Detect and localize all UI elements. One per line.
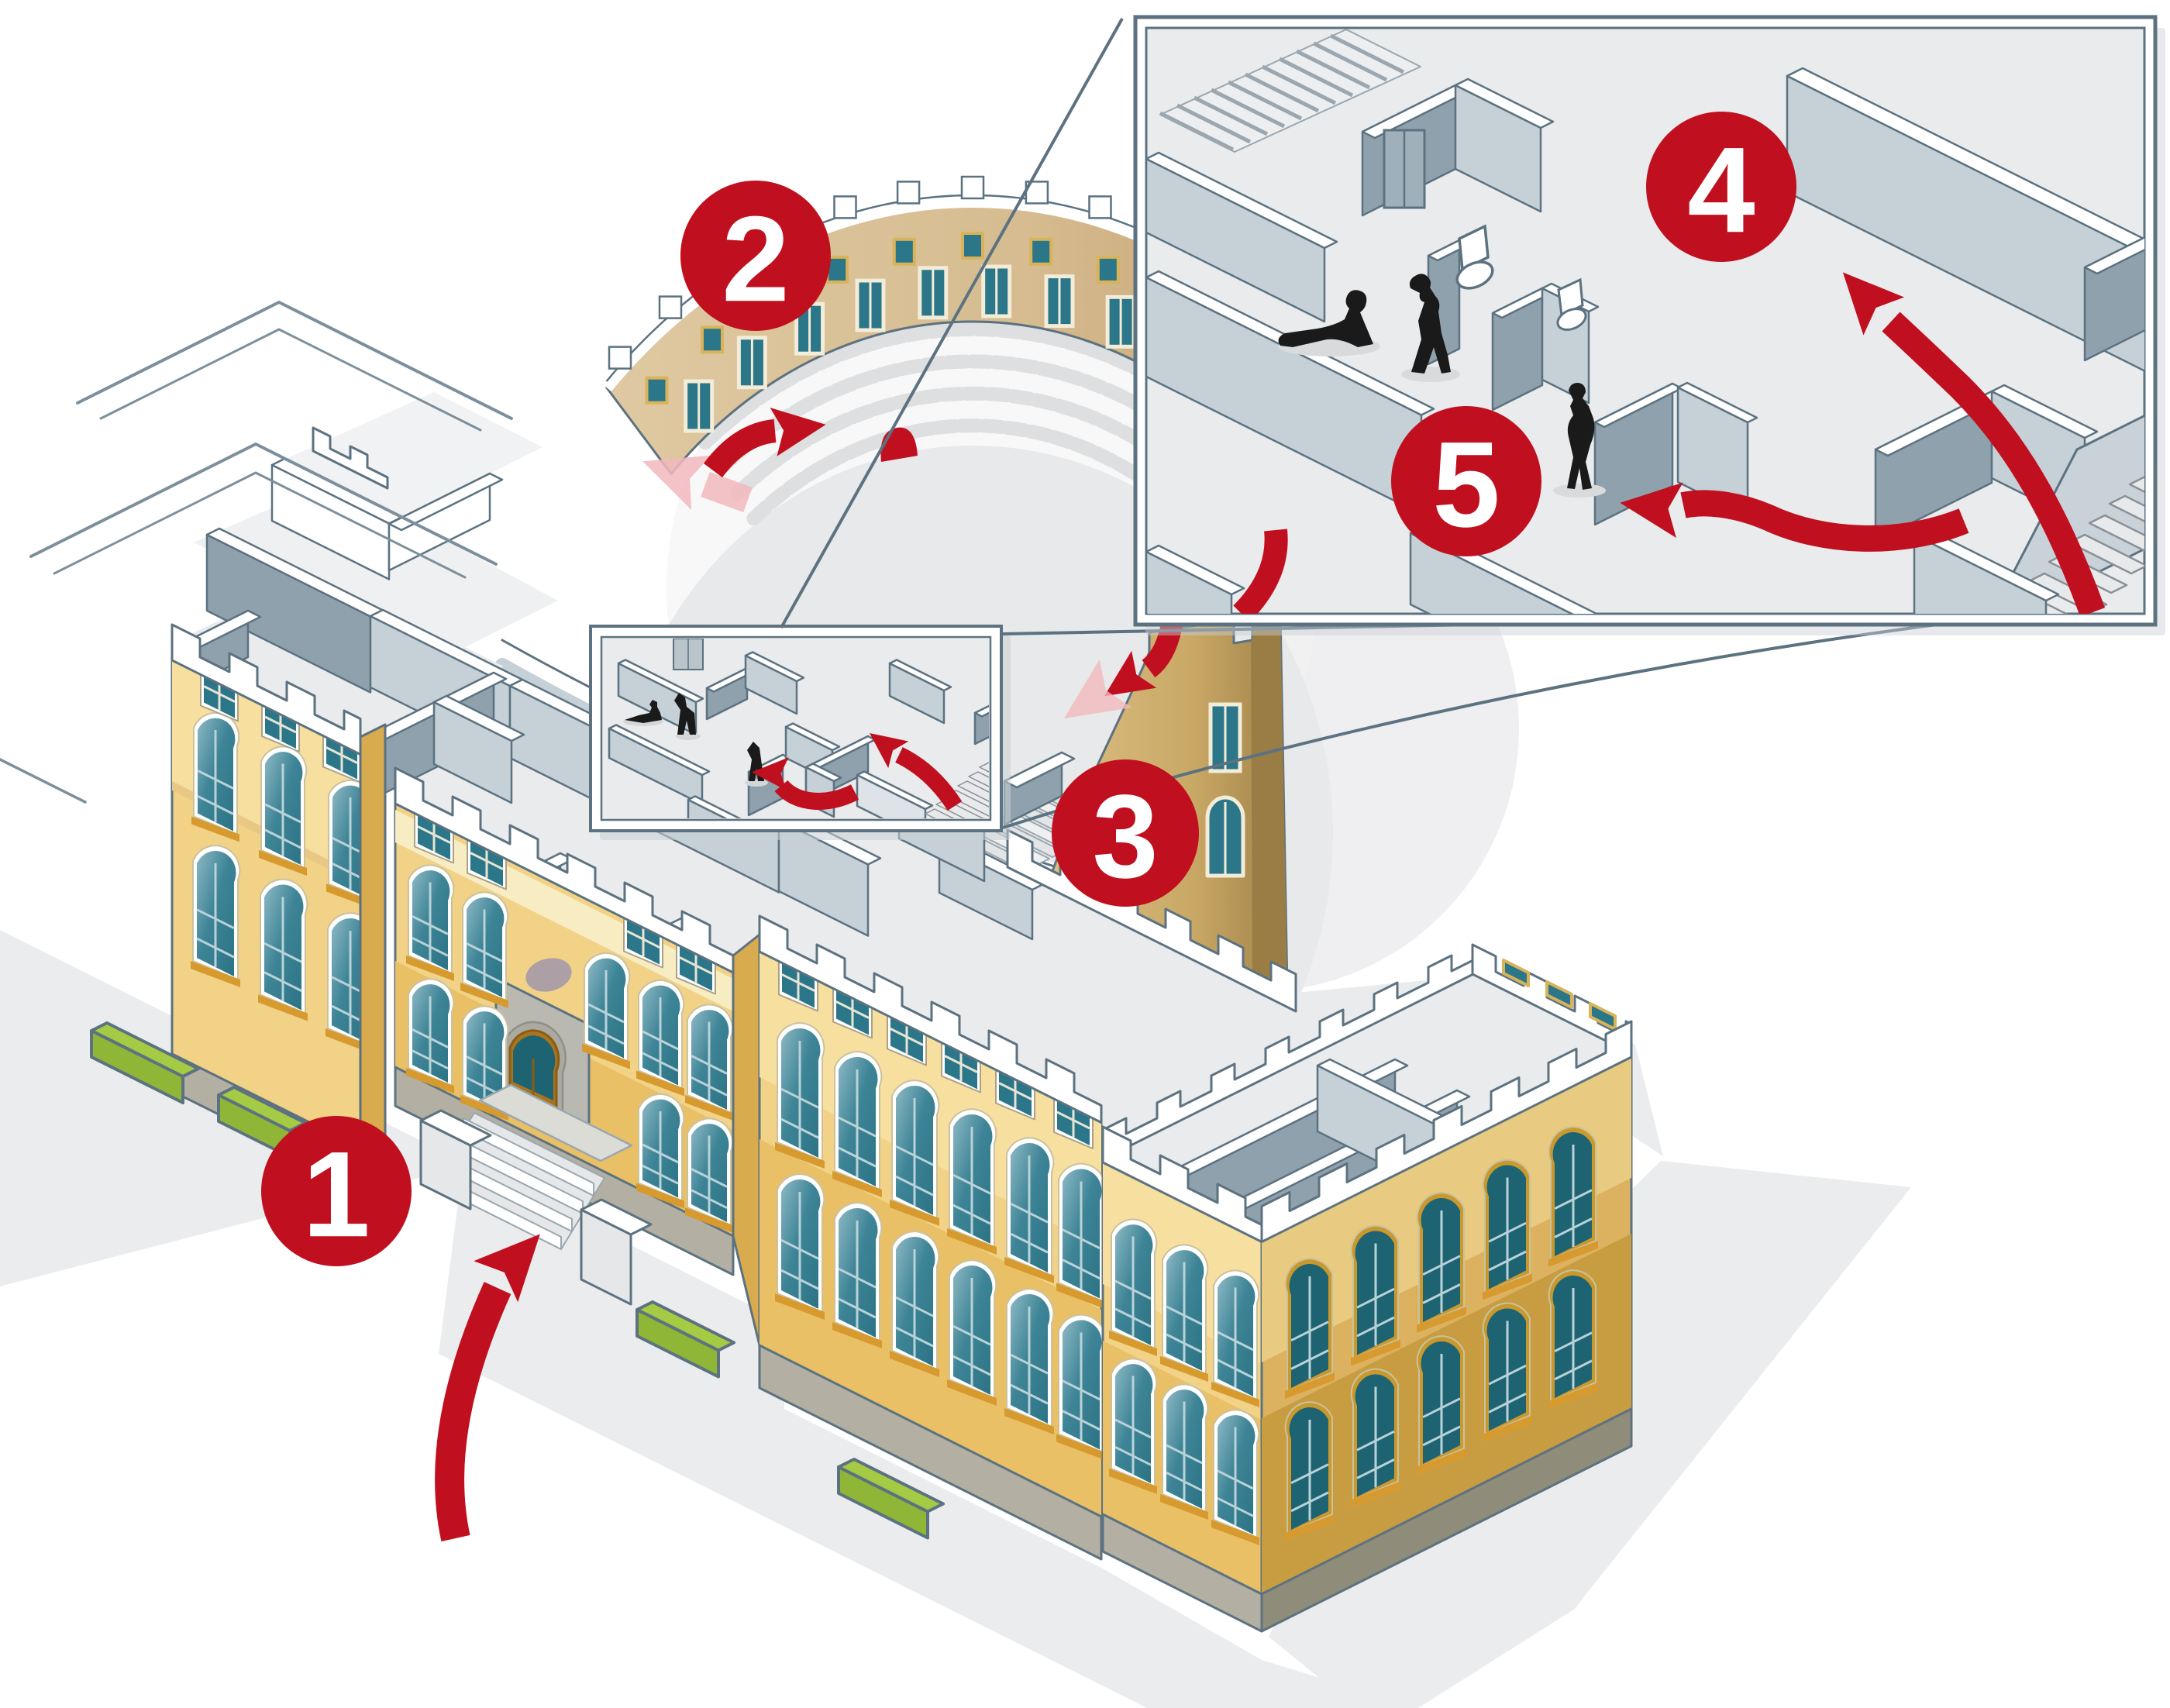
svg-text:4: 4 bbox=[1687, 122, 1755, 258]
svg-text:2: 2 bbox=[722, 191, 789, 327]
svg-text:5: 5 bbox=[1432, 417, 1500, 553]
svg-text:1: 1 bbox=[302, 1127, 370, 1262]
svg-text:3: 3 bbox=[1092, 770, 1158, 903]
